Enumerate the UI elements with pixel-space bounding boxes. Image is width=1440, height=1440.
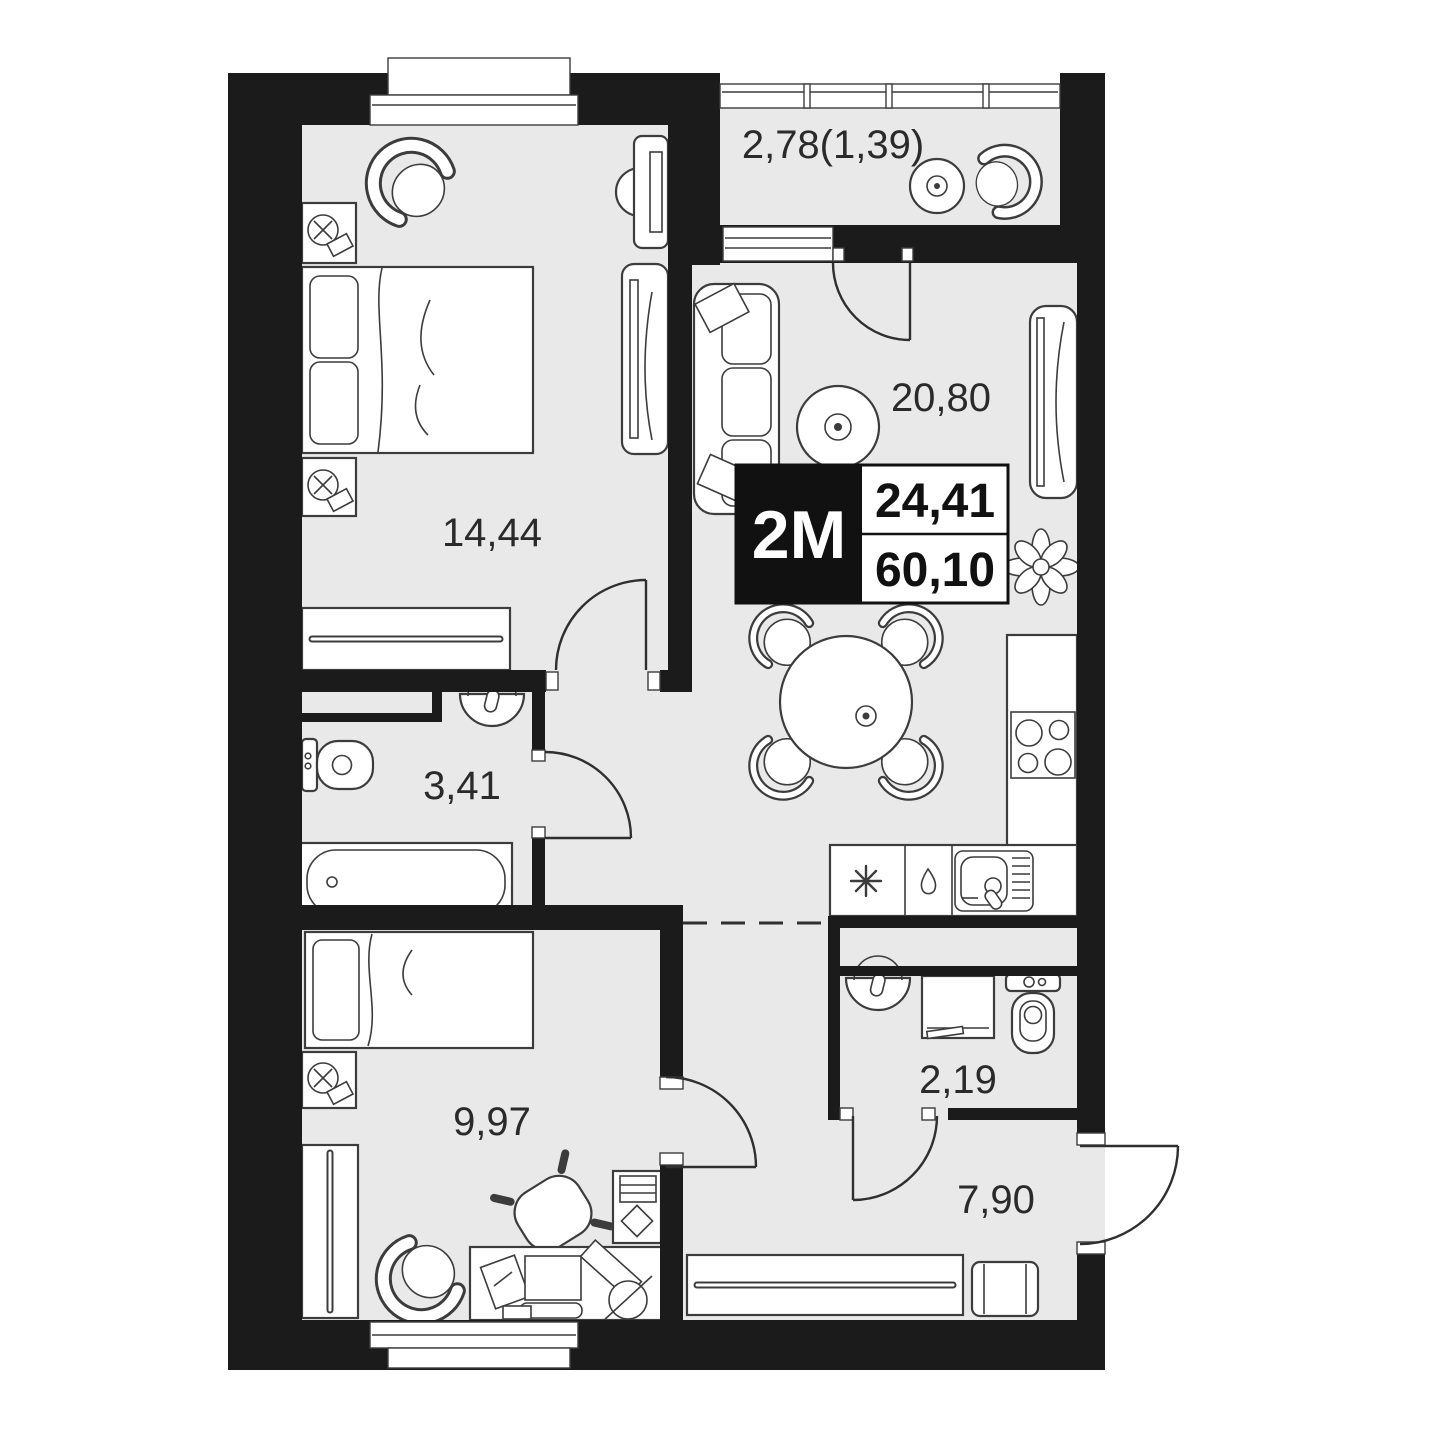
floor-duct (840, 928, 1077, 966)
pillow (313, 940, 359, 1040)
label-wc: 2,19 (919, 1058, 997, 1102)
toilet-icon (302, 739, 373, 791)
apartment-badge: 2M 24,41 60,10 (736, 465, 1008, 603)
pillow (310, 276, 358, 358)
balcony-glazing (720, 84, 1060, 108)
monitor-icon (525, 1256, 581, 1300)
label-bathroom: 3,41 (423, 764, 501, 808)
bench (972, 1262, 1038, 1316)
dressing-table (634, 136, 668, 248)
badge-total-area: 60,10 (875, 544, 995, 597)
dining-table (780, 636, 912, 768)
label-living-kitchen: 20,80 (891, 376, 991, 420)
fridge-icon (851, 866, 881, 896)
label-hallway: 7,90 (957, 1178, 1035, 1222)
floor-plan-page: 14,44 2,78(1,39) 20,80 3,41 9,97 2,19 7,… (0, 0, 1440, 1440)
label-bedroom-second: 9,97 (453, 1100, 531, 1144)
tv-icon (630, 280, 638, 438)
label-balcony: 2,78(1,39) (742, 123, 924, 167)
kitchen-sink-icon (955, 851, 1033, 911)
badge-type-label: 2M (752, 497, 846, 573)
pillow (310, 362, 358, 444)
badge-rooms-area: 24,41 (875, 475, 995, 528)
window-living-balcony (723, 227, 833, 261)
window-bedroom-main (388, 58, 570, 95)
toilet-icon (1006, 974, 1060, 1053)
hallway-furniture (687, 1255, 1038, 1316)
hob-icon (1011, 712, 1075, 778)
floor-plan: 14,44 2,78(1,39) 20,80 3,41 9,97 2,19 7,… (0, 0, 1440, 1440)
window-bedroom-second (370, 1322, 578, 1368)
label-bedroom-main: 14,44 (442, 511, 542, 555)
